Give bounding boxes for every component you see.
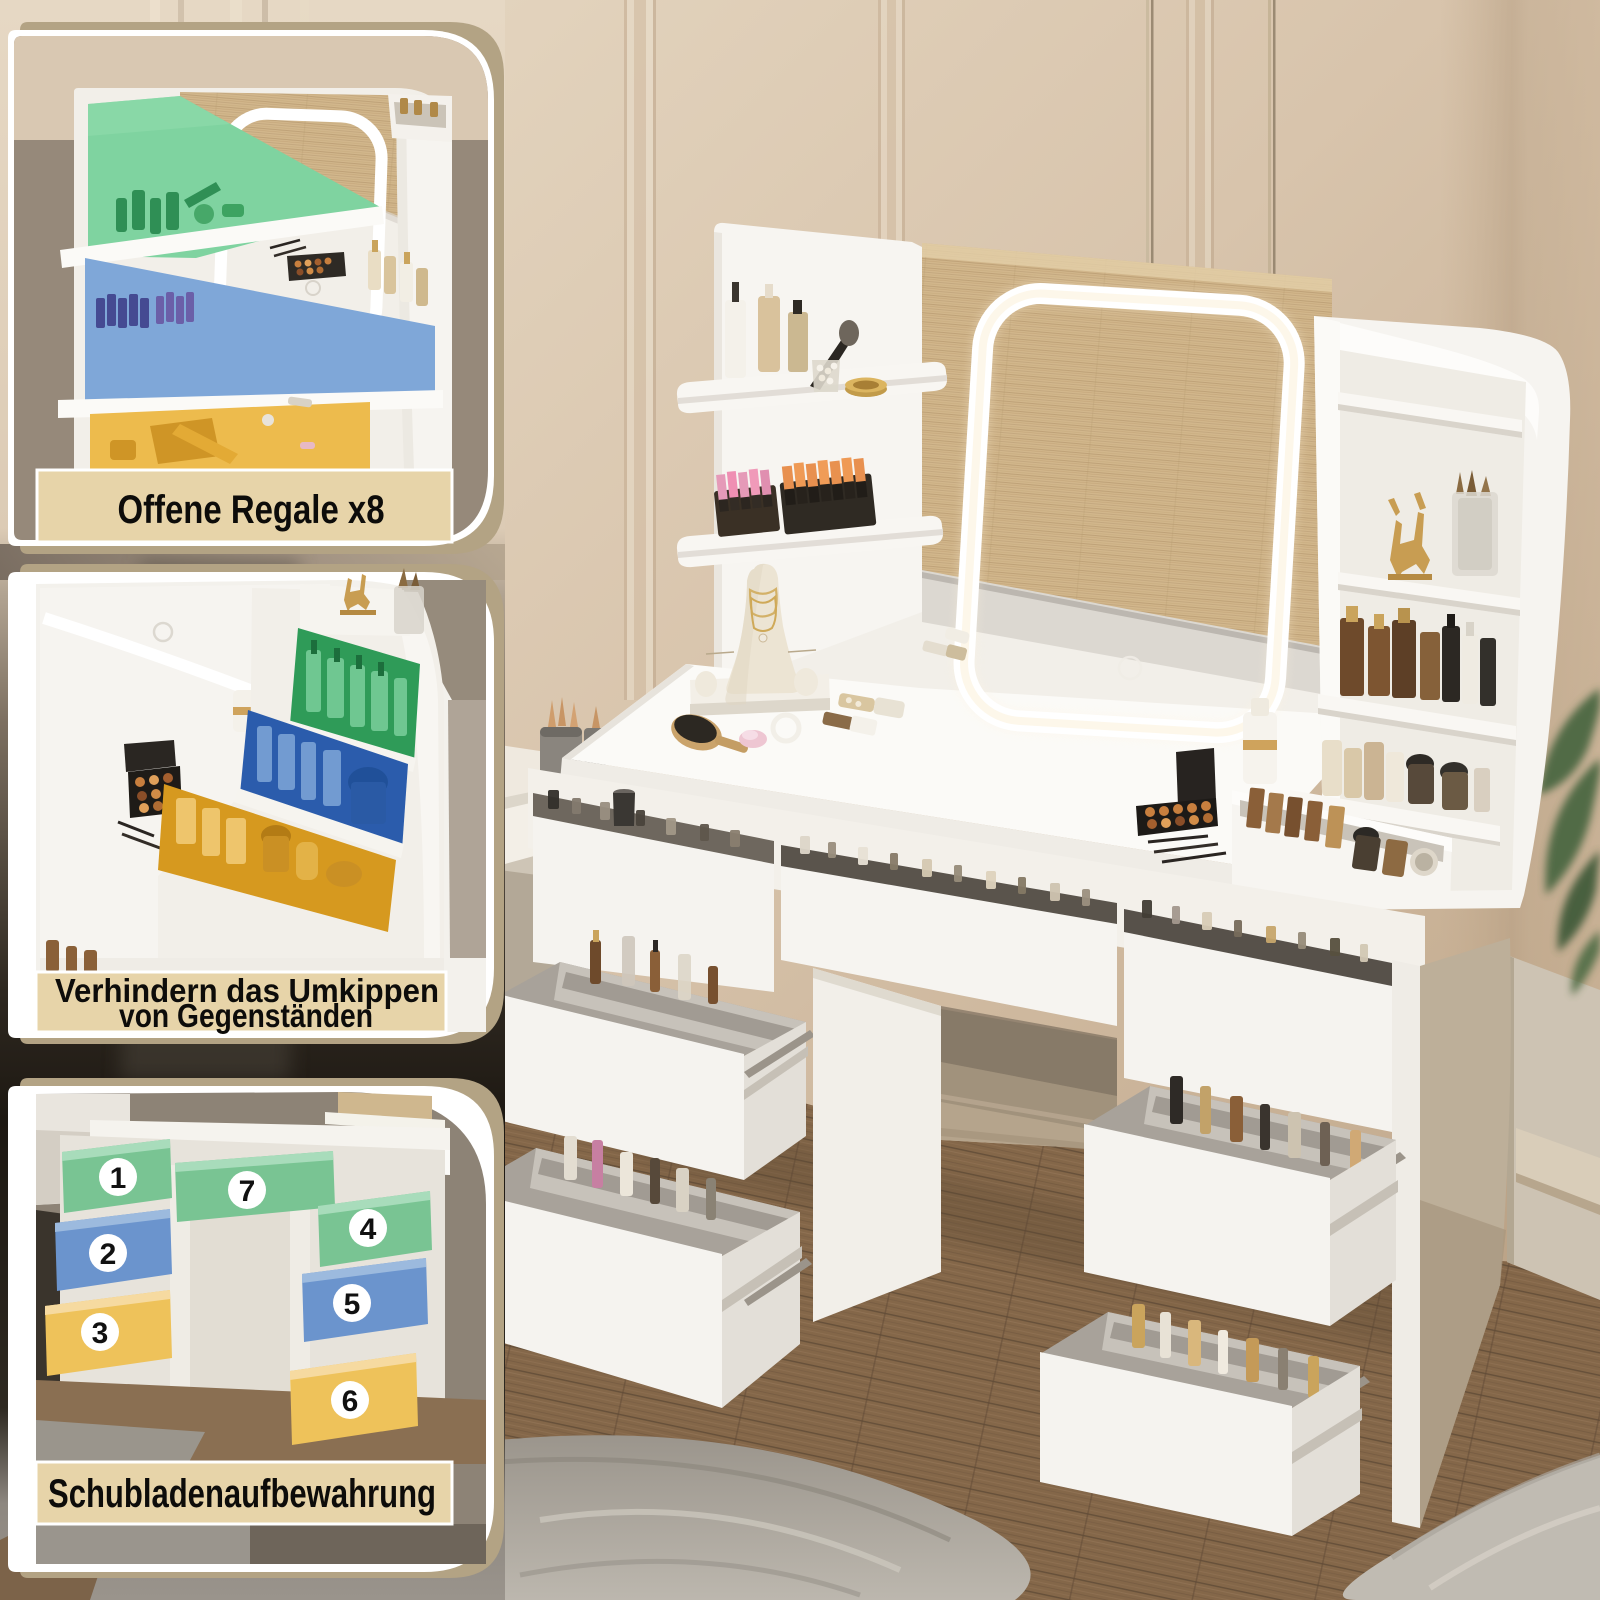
- svg-text:Schubladenaufbewahrung: Schubladenaufbewahrung: [48, 1472, 436, 1516]
- svg-text:5: 5: [344, 1288, 361, 1321]
- svg-text:6: 6: [342, 1385, 359, 1418]
- svg-text:4: 4: [360, 1213, 377, 1246]
- svg-text:2: 2: [100, 1238, 117, 1271]
- svg-text:7: 7: [239, 1175, 256, 1208]
- svg-text:von Gegenständen: von Gegenständen: [119, 997, 373, 1034]
- svg-text:Offene Regale x8: Offene Regale x8: [118, 488, 385, 532]
- svg-text:3: 3: [92, 1317, 109, 1350]
- svg-text:1: 1: [110, 1162, 127, 1195]
